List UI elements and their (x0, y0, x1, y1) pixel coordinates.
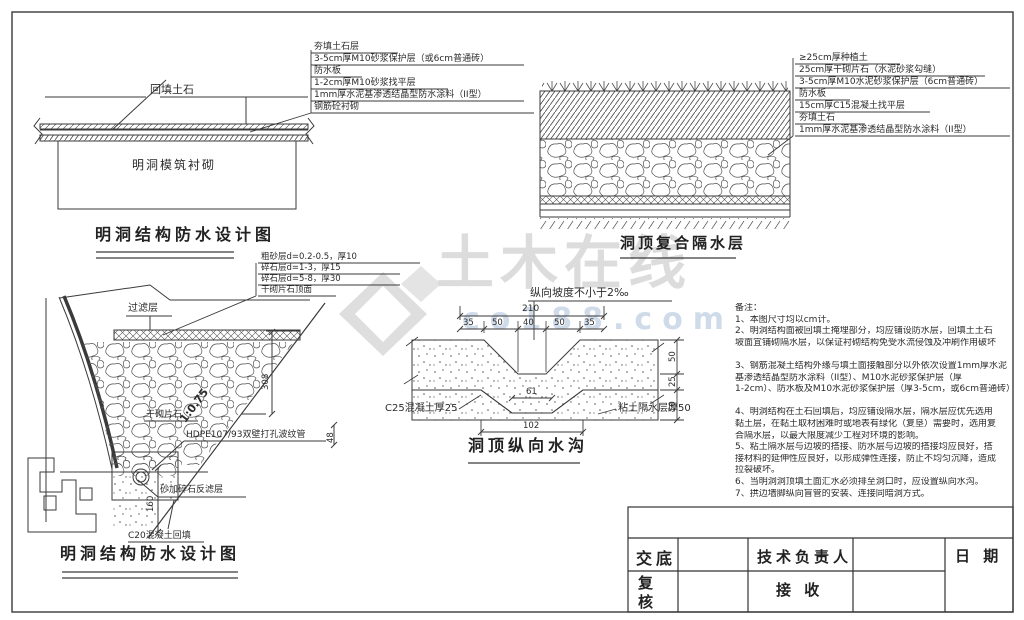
d3-c20-label: C20混凝土回填 (128, 531, 191, 542)
d4-dim-bottom: 102 (523, 421, 539, 432)
d3-dim-height: 308 (261, 374, 272, 390)
d3-hdpe-label: HDPE107/93双壁打孔波纹管 (186, 430, 305, 441)
d3-dim-foot: 160 (146, 496, 157, 512)
note-line (735, 349, 1017, 361)
gravel-label: 碎石层d=1-3，厚15 (261, 263, 341, 274)
note-line: 黏土层，在黏土取材困难时或地表有绿化（复垦）需要时，选用复 (735, 419, 1017, 431)
d4-clay-label: 粘土隔水层厚50 (618, 403, 691, 414)
d1-layer-label: 1mm厚水泥基渗透结晶型防水涂料（II型） (314, 90, 487, 101)
d4-c25-label: C25混凝土厚25 (385, 403, 457, 414)
d2-title: 洞顶复合隔水层 (620, 238, 746, 249)
notes-heading: 备注： (735, 303, 1017, 315)
titleblock-fuhe: 复核 (638, 574, 656, 612)
gravel-label: 粗砂层d=0.2-0.5，厚10 (261, 252, 357, 263)
gravel-label: 干砌片石顶面 (261, 285, 312, 296)
d3-sand-filter-label: 砂加碎石反滤层 (160, 485, 223, 496)
d4-dim-seg: 50 (492, 318, 503, 329)
note-line: 2、明洞结构面被回填土掩埋部分，均应铺设防水层，回填土土石 (735, 326, 1017, 338)
d1-layer-label: 1-2cm厚M10砂浆找平层 (314, 78, 416, 89)
note-line: 1、本图尺寸均以cm计。 (735, 315, 1017, 327)
d2-layer-label: ≥25cm厚种植土 (799, 53, 868, 64)
note-line: 5、粘土隔水层与边坡的搭接、防水层与边坡的搭接均应良好，搭 (735, 442, 1017, 454)
d2-layer-label: 25cm厚干砌片石（水泥砂浆勾缝） (799, 65, 941, 76)
d3-dim-pipe: 48 (326, 432, 337, 443)
note-line (735, 396, 1017, 408)
titleblock-date: 日 期 (955, 545, 1002, 566)
d1-layer-label: 防水板 (314, 66, 341, 77)
note-line: 3、钢筋混凝土结构外缘与填土面接触部分以外依次设置1mm厚水泥 (735, 361, 1017, 373)
d3-filter-label: 过滤层 (128, 303, 158, 314)
drawing-sheet: 土木在线 co188.com (0, 0, 1024, 620)
d3-drystone-label: 干砌片石 (146, 410, 182, 421)
titleblock-jiaodi: 交底 (636, 545, 676, 569)
d1-layer-label: 夯填土石层 (314, 42, 359, 53)
d2-layer-label: 夯填土石 (799, 113, 835, 124)
note-line: 合隔水层，以最大限度减少工程对环境的影响。 (735, 431, 1017, 443)
d1-lining-label: 明洞模筑衬砌 (132, 160, 216, 171)
d2-layer-label: 15cm厚C15混凝土找平层 (799, 101, 905, 112)
d1-title: 明洞结构防水设计图 (95, 229, 275, 240)
titleblock-jieshou: 接 收 (776, 579, 823, 600)
d2-layer-label: 3-5cm厚M10水泥砂浆保护层（6cm普通砖） (799, 77, 983, 88)
d4-dim-seg: 50 (554, 318, 565, 329)
d4-dim-seg: 35 (463, 318, 474, 329)
d4-dim-total: 210 (522, 304, 539, 315)
note-line: 6、当明洞洞顶填土面汇水必须排至洞口时，应设置纵向水沟。 (735, 477, 1017, 489)
note-line: 7、拱边墙脚纵向盲管的安装、连接同暗洞方式。 (735, 489, 1017, 501)
d2-layer-label: 1mm厚水泥基渗透结晶型防水涂料（II型） (799, 125, 972, 136)
d2-layer-label: 防水板 (799, 89, 826, 100)
note-line: 拉裂破坏。 (735, 465, 1017, 477)
d1-layer-label: 钢筋砼衬砌 (314, 102, 359, 113)
note-line: 接材料的延伸性应良好，以形成弹性连接，防止不均匀沉降，造成 (735, 454, 1017, 466)
d4-slope-note: 纵向坡度不小于2‰ (530, 287, 629, 298)
d2-linework (540, 78, 790, 258)
gravel-label: 碎石层d=5-8，厚30 (261, 274, 341, 285)
d4-dim-seg: 35 (584, 318, 595, 329)
d1-layer-label: 3-5cm厚M10砂浆保护层（或6cm普通砖） (314, 54, 489, 65)
note-line: 1-2cm）、防水板及M10水泥砂浆保护层（厚3-5cm，或6cm普通砖） (735, 384, 1017, 396)
d4-title: 洞顶纵向水沟 (468, 440, 588, 451)
d4-dim-seg: 40 (523, 318, 534, 329)
notes-block: 备注： 1、本图尺寸均以cm计。 2、明洞结构面被回填土掩埋部分，均应铺设防水层… (735, 303, 1017, 500)
d1-fill-label: 回填土石 (150, 84, 194, 95)
d4-dim-right: 25 (668, 376, 679, 387)
note-line: 坡面宜铺砌隔水层，以保证衬砌结构免受水流侵蚀及冲刷作用破坏 (735, 338, 1017, 350)
d4-dim-right: 50 (668, 351, 679, 362)
d3-title: 明洞结构防水设计图 (60, 548, 240, 559)
titleblock-tech: 技术负责人 (757, 546, 852, 567)
note-line: 4、明洞结构在土石回填后，均应铺设隔水层，隔水层应优先选用 (735, 407, 1017, 419)
d4-dim-inner: 61 (526, 387, 537, 398)
note-line: 基渗透结晶型防水涂料（II型）、M10水泥砂浆保护层（厚 (735, 373, 1017, 385)
